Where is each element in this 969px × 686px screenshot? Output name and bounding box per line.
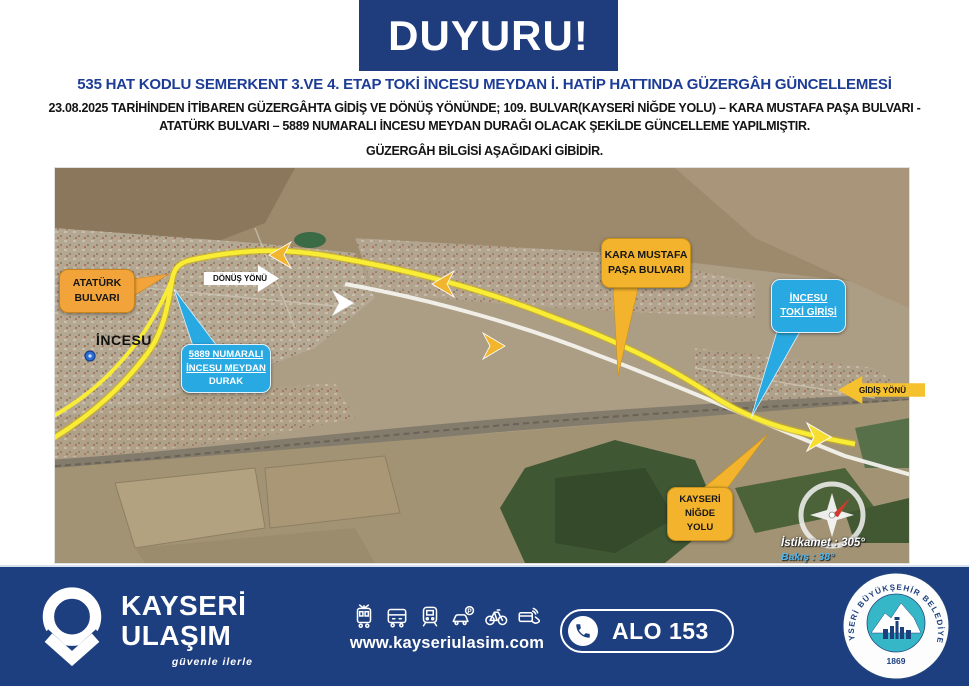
bicycle-icon [483, 603, 509, 629]
tram-icon [351, 603, 377, 629]
phone-handset-icon [574, 622, 592, 640]
compass-view-text: Bakış : 38° [781, 551, 834, 563]
map-pin-icon [85, 351, 95, 361]
transport-icon-row: P [351, 603, 542, 629]
callout-kayseri-nigde-yolu: KAYSERİ NİĞDE YOLU [667, 487, 733, 541]
brand-line-2: ULAŞIM [121, 621, 246, 651]
banner-duyuru: DUYURU! [359, 0, 618, 71]
website-link[interactable]: www.kayseriulasim.com [345, 634, 549, 653]
compass-heading-text: İstikamet : 305° [781, 537, 865, 549]
phone-icon [568, 616, 598, 646]
brand-wordmark: KAYSERİ ULAŞIM [121, 591, 246, 651]
parking-icon: P [450, 603, 476, 629]
callout-5889-durak: 5889 NUMARALI İNCESU MEYDAN DURAK [181, 344, 271, 393]
smartcard-icon [516, 603, 542, 629]
brand-tagline: güvenle ilerle [121, 656, 253, 668]
callout-kara-mustafa-pasa: KARA MUSTAFA PAŞA BULVARI [601, 238, 691, 288]
callout-ataturk-bulvari: ATATÜRK BULVARI [59, 269, 135, 313]
svg-text:P: P [467, 608, 472, 615]
page-title: 535 HAT KODLU SEMERKENT 3.VE 4. ETAP TOK… [0, 76, 969, 93]
bus-icon [384, 603, 410, 629]
callout-toki-girisi: İNCESU TOKİ GİRİŞİ [771, 279, 846, 333]
banner-text: DUYURU! [388, 12, 589, 60]
seal-year: 1869 [887, 656, 906, 666]
route-map: ATATÜRK BULVARI DÖNÜŞ YÖNÜ İNCESU 5889 N… [55, 168, 909, 563]
kayseri-ulasim-logo-icon [28, 580, 116, 676]
brand-line-1: KAYSERİ [121, 591, 246, 621]
municipality-seal: KAYSERİ BÜYÜKŞEHİR BELEDİYESİ 1869 [841, 571, 951, 681]
alo-153-label: ALO 153 [612, 618, 709, 645]
incesu-place-label: İNCESU [96, 332, 152, 348]
alo-153-badge[interactable]: ALO 153 [560, 609, 734, 653]
body-line-3: GÜZERGÂH BİLGİSİ AŞAĞIDAKİ GİBİDİR. [0, 144, 969, 158]
body-line-2: ATATÜRK BULVARI – 5889 NUMARALI İNCESU M… [0, 119, 969, 133]
announcement-poster: DUYURU! 535 HAT KODLU SEMERKENT 3.VE 4. … [0, 0, 969, 686]
body-line-1: 23.08.2025 TARİHİNDEN İTİBAREN GÜZERGÂHT… [0, 101, 969, 115]
train-icon [417, 603, 443, 629]
